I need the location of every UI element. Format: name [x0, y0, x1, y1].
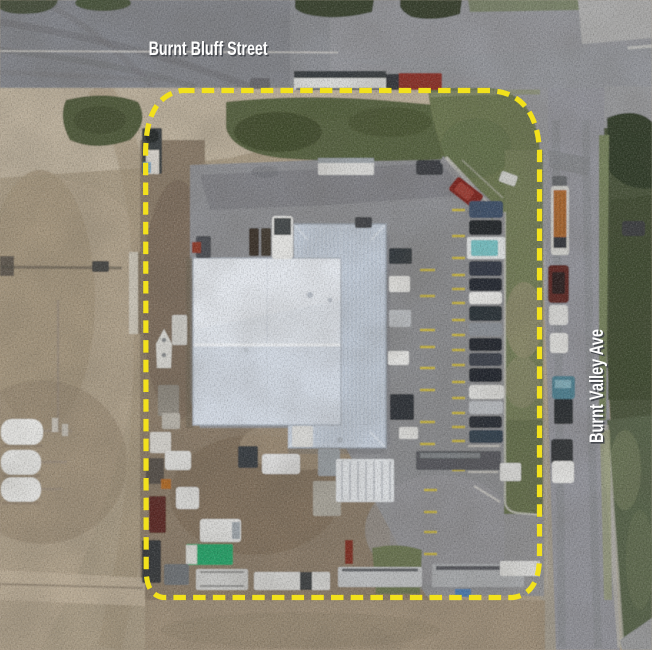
svg-text:Burnt Valley Ave: Burnt Valley Ave — [587, 329, 608, 443]
svg-text:Burnt Bluff Street: Burnt Bluff Street — [149, 39, 269, 60]
